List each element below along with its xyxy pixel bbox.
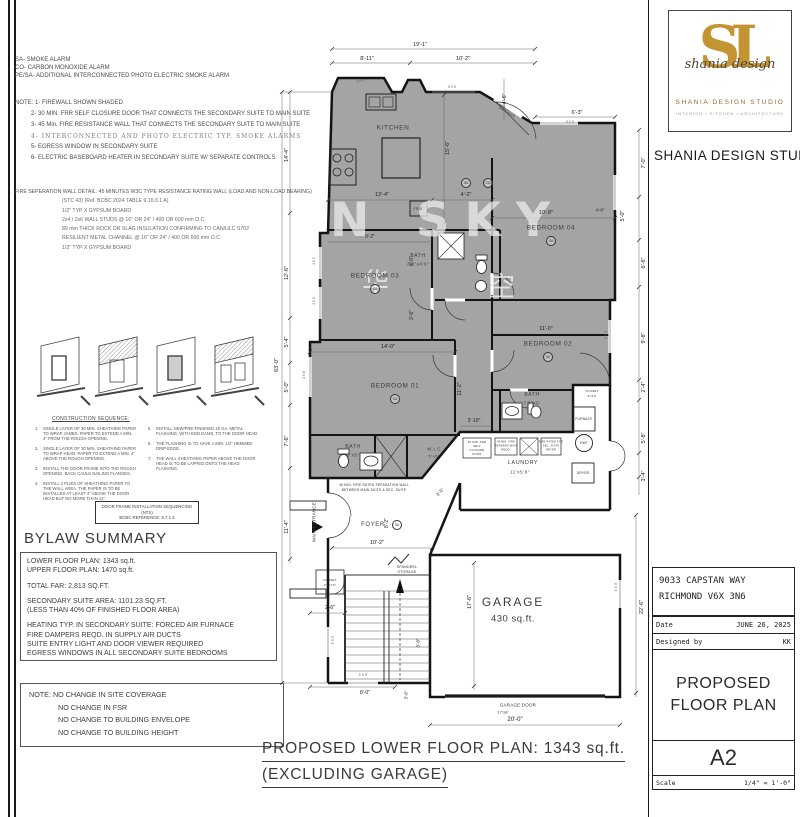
plan-label: SEC. SUITE <box>543 445 559 448</box>
plan-label: GARAGE <box>482 595 544 609</box>
legend-line: SA- SMOKE ALARM <box>15 56 229 64</box>
legend-line: PE/SA- ADDITIONAL INTERCONNECTED PHOTO E… <box>15 72 229 80</box>
plan-label: 2'x2'10" <box>324 583 336 587</box>
bylaw-group: SECONDARY SUITE AREA: 1101.23 SQ.FT.(LES… <box>27 597 270 616</box>
bylaw-group: LOWER FLOOR PLAN: 1343 sq.ft.UPPER FLOOR… <box>27 557 270 576</box>
plan-label: SPANDREL <box>397 565 418 569</box>
door-install-diagrams <box>35 332 267 416</box>
construction-step-number: 6. <box>148 441 156 451</box>
bylaw-summary-box: LOWER FLOOR PLAN: 1343 sq.ft.UPPER FLOOR… <box>20 552 277 661</box>
address-line2: RICHMOND V6X 3N6 <box>659 589 788 605</box>
window-size-label: 3 X 4 <box>356 78 364 84</box>
construction-sequence-left: 1.SINGLE LAYER OF 30 MIN. SHEATHING PAPE… <box>35 426 137 506</box>
dimension-label: 2'-6" <box>325 605 335 611</box>
dimension-label: 63'-0" <box>274 358 280 372</box>
plan-label: LAUNDRY <box>508 460 538 466</box>
construction-step-number: 3. <box>35 466 43 476</box>
sketch-step3 <box>153 337 206 405</box>
plan-label: FURNACE <box>575 417 592 421</box>
bylaw-line: (LESS THAN 40% OF FINISHED FLOOR AREA) <box>27 606 270 615</box>
bylaw-line: UPPER FLOOR PLAN: 1470 sq.ft. <box>27 566 270 575</box>
note-item: 6- ELECTRIC BASEBOARD HEATER IN SECONDAR… <box>31 153 310 164</box>
bylaw-group: TOTAL FAR: 2,813 SQ.FT. <box>27 582 270 591</box>
note-item: 5- EGRESS WINDOW IN SECONDARY SUITE <box>31 142 310 153</box>
dimension-label: 4'-2" <box>461 192 472 198</box>
construction-step-number: 7. <box>148 456 156 471</box>
plan-label: FIRE RATED FOR <box>539 441 563 444</box>
plan-label: DRYER <box>577 471 589 475</box>
window-size-label: 3' X 5' <box>331 636 335 645</box>
dimension-label: 3'-6" <box>409 310 415 320</box>
construction-step-number: 5. <box>148 426 156 436</box>
drawing-title-line1: PROPOSED LOWER FLOOR PLAN: 1343 sq.ft. <box>262 736 625 762</box>
construction-step-text: SINGLE LAYER OF 30 MIN. SHEATHING PAPER … <box>43 446 137 461</box>
legend-line: CO- CARBON MONOXIDE ALARM <box>15 64 229 72</box>
smoke-alarm-symbol: SA <box>543 352 553 362</box>
designer-value: KK <box>783 638 791 646</box>
sheet-border-line <box>8 0 10 817</box>
plan-label: BEDROOM 01 <box>371 383 420 390</box>
dimension-label: 5'-8" <box>641 433 647 444</box>
dimension-label: 5'-0" <box>620 211 626 222</box>
window-size-label: 3' X 5' <box>359 673 368 677</box>
bylaw-line: TOTAL FAR: 2,813 SQ.FT. <box>27 582 270 591</box>
date-label: Date <box>656 621 673 629</box>
general-notes: NOTE: 1- FIREWALL SHOWN SHADED 2- 30 MIN… <box>15 98 310 164</box>
date-row: Date JUNE 26, 2025 <box>653 615 794 633</box>
dimension-label: 12'-6" <box>284 266 290 280</box>
dimension-label: 13'-4" <box>375 192 389 198</box>
plan-labels: KITCHENBEDROOM 03BEDROOM 01BEDROOM 04BED… <box>270 35 660 735</box>
plan-label: 2'x10' <box>587 394 596 398</box>
sheet-title: PROPOSED FLOOR PLAN <box>653 649 794 740</box>
dimension-label: 9'-8" <box>641 333 647 344</box>
dimension-label: 17'-6" <box>467 595 473 609</box>
construction-step-text: THE WALL SHEATHING PAPER ABOVE THE DOOR … <box>156 456 260 471</box>
dimension-label: 10'-2" <box>370 540 384 546</box>
smoke-alarm-symbol: SA <box>392 520 402 530</box>
plan-label: 45 MIN. FIRE RATED SEPARATION WALL <box>339 483 409 487</box>
sheet-number: A2 <box>653 740 794 775</box>
plan-label: GARAGE DOOR <box>500 703 536 708</box>
scale-value: 1/4" = 1'-0" <box>744 779 791 787</box>
site-note-line: NO CHANGE TO BUILDING HEIGHT <box>58 727 275 740</box>
plan-label: BETWEEN MAIN <box>495 445 517 448</box>
plan-label: 11'x5'8" <box>510 470 530 475</box>
plan-label: REQD. <box>501 449 510 452</box>
dimension-label: 2'-4" <box>641 382 647 393</box>
notes-items: 2- 30 MIN. FRR SELF CLOSURE DOOR THAT CO… <box>15 109 310 164</box>
window-size-label: 4' X 3' <box>614 583 618 592</box>
plan-label: FRIG <box>414 207 423 211</box>
plan-label: W.I.C <box>427 447 441 452</box>
dimension-label: 3'-10" <box>468 418 481 424</box>
dimension-label: 8'-0" <box>360 690 370 696</box>
designer-label: Designed by <box>656 638 702 646</box>
dimension-label: 11'-4" <box>284 520 290 534</box>
construction-sequence-heading: CONSTRUCTION SEQUENCE: <box>52 416 130 422</box>
dimension-label: 7'-6" <box>284 436 290 447</box>
dimension-label: 19'-1" <box>413 42 427 48</box>
construction-step-text: INSTALL NEW/PRE-FINISHED 26 GA. METAL FL… <box>156 426 260 436</box>
dimension-label: 20'-0" <box>507 717 522 723</box>
floor-plan: N SKY 华 空 KITCHENBEDROOM 03BEDROOM 01BED… <box>270 35 660 735</box>
dimension-label: 15'-6" <box>445 141 451 155</box>
plan-label: DOOR <box>472 452 481 456</box>
drawing-title: PROPOSED LOWER FLOOR PLAN: 1343 sq.ft. (… <box>262 736 625 788</box>
dimension-label: 3'-4" <box>641 471 647 482</box>
sheet-title-line2: FLOOR PLAN <box>670 695 776 717</box>
dimension-label: 14'-4" <box>284 148 290 162</box>
dimension-label: 10'-8" <box>539 210 553 216</box>
plan-label: BEDROOM 04 <box>527 225 576 232</box>
plan-label: 8'x5' <box>347 453 359 458</box>
designer-row: Designed by KK <box>653 633 794 649</box>
address-line1: 9033 CAPSTAN WAY <box>659 573 788 589</box>
dimension-label: 22'-6" <box>639 600 645 614</box>
construction-step-number: 1. <box>35 426 43 441</box>
plan-label: BEDROOM 02 <box>524 341 573 348</box>
dimension-label: 4'-8" <box>596 208 605 213</box>
dimension-label: 9'-2" <box>365 234 375 240</box>
logo-script-text: shania design <box>669 57 791 72</box>
logo-tagline: INTERIOR • KITCHEN • ARCHITECTURE <box>669 111 791 116</box>
bylaw-summary-heading: BYLAW SUMMARY <box>24 530 167 547</box>
site-note-line: NO CHANGE IN FSR <box>58 702 275 715</box>
plan-label: 5'x6' <box>429 454 440 459</box>
construction-step: 5.INSTALL NEW/PRE-FINISHED 26 GA. METAL … <box>148 426 260 436</box>
window-size-label: 4 X 6 <box>302 371 306 378</box>
plan-label: 45 MIN. FIRE <box>497 441 515 444</box>
sheet-title-line1: PROPOSED <box>676 673 771 695</box>
notes-title: NOTE: 1- FIREWALL SHOWN SHADED <box>15 98 310 109</box>
bylaw-line: FIRE DAMPERS REQD. IN SUPPLY AIR DUCTS <box>27 631 270 640</box>
construction-step-text: THE FLASHING IS TO HAVE A MIN. 1/2" HEMM… <box>156 441 260 451</box>
smoke-alarm-symbol: SA <box>461 178 471 188</box>
note-item: 3- 45 Min. FIRE RESISTANCE WALL THAT CON… <box>31 120 310 131</box>
plan-label: 430 sq.ft. <box>491 614 535 625</box>
plan-label: DRYER <box>546 449 556 452</box>
plan-label: CLOSET <box>323 578 337 582</box>
smoke-alarm-symbol: SA <box>370 284 380 294</box>
bylaw-line: LOWER FLOOR PLAN: 1343 sq.ft. <box>27 557 270 566</box>
construction-step: 2.SINGLE LAYER OF 30 MIN. SHEATHING PAPE… <box>35 446 137 461</box>
dimension-label: 5'-0" <box>284 382 290 393</box>
sketch-step4 <box>211 337 264 405</box>
dimension-label: 11'-0" <box>539 326 553 332</box>
smoke-alarm-symbol: SA <box>390 394 400 404</box>
bylaw-group: HEATING TYP. IN SECONDARY SUITE: FORCED … <box>27 621 270 658</box>
plan-label: ENTRANCE <box>498 106 516 119</box>
plan-label: CLOSET <box>585 389 599 393</box>
door-frame-caption-line2: BCBC REFERENCE: 9.7.1.3 <box>97 515 197 521</box>
dimension-label: 3'-8" <box>416 639 421 648</box>
dimension-label: 3'-5" <box>435 487 445 497</box>
dimension-label: 7'-0" <box>641 158 647 169</box>
door-frame-caption-line1: DOOR FRAME INSTALLATION SEQUENCING (NTS) <box>97 504 197 515</box>
dimension-label: 11'-2" <box>457 382 463 396</box>
dimension-label: 6'-6" <box>641 258 647 269</box>
site-note-rest: NO CHANGE IN FSRNO CHANGE TO BUILDING EN… <box>58 702 275 740</box>
plan-label: MAIN ENTRANCE <box>312 502 317 542</box>
studio-name: SHANIA DESIGN STUDIO <box>654 148 800 163</box>
window-size-label: 5 X 5 <box>566 120 573 124</box>
fire-separation-notes: FIRE SEPERATION WALL DETAIL: 45 MINUTES … <box>15 188 312 253</box>
logo-studio-text: SHANIA DESIGN STUDIO <box>669 99 791 106</box>
bylaw-line: HEATING TYP. IN SECONDARY SUITE: FORCED … <box>27 621 270 630</box>
alarm-legend: SA- SMOKE ALARMCO- CARBON MONOXIDE ALARM… <box>15 56 229 81</box>
sketch-step1 <box>37 337 90 405</box>
construction-step: 3.INSTALL THE DOOR FRAME INTO THE ROUGH … <box>35 466 137 476</box>
plan-label: KITCHEN <box>377 125 410 132</box>
smoke-alarm-symbol: SA <box>546 236 556 246</box>
logo: SL shania design SHANIA DESIGN STUDIO IN… <box>668 10 792 132</box>
construction-step: 4.INSTALL 2 PLIES OF SHEATHING PAPER TO … <box>35 481 137 501</box>
window-size-label: 5 X 5 <box>448 85 455 89</box>
project-address: 9033 CAPSTAN WAY RICHMOND V6X 3N6 <box>653 568 794 615</box>
dimension-label: 3'-6" <box>404 691 409 700</box>
construction-step-number: 2. <box>35 446 43 461</box>
bylaw-line: SECONDARY SUITE AREA: 1101.23 SQ.FT. <box>27 597 270 606</box>
plan-label: 17'x8' <box>497 710 508 715</box>
plan-label: STORAGE <box>398 570 417 574</box>
scale-label: Scale <box>656 779 676 787</box>
dimension-label: 6'-3" <box>572 110 583 116</box>
note-item: 4- INTERCONNECTED AND PHOTO ELECTRIC TYP… <box>31 131 310 142</box>
site-note-line: NO CHANGE TO BUILDING ENVELOPE <box>58 714 275 727</box>
plan-label: BATH <box>524 392 539 398</box>
construction-step: 1.SINGLE LAYER OF 30 MIN. SHEATHING PAPE… <box>35 426 137 441</box>
plan-label: FOYER <box>361 522 385 528</box>
plan-label: BEDROOM 03 <box>351 273 400 280</box>
dimension-label: 14'-0" <box>381 344 395 350</box>
sketch-step2 <box>95 337 148 405</box>
dimension-label: 4'-6" <box>502 94 508 105</box>
plan-label: HWT <box>580 441 588 445</box>
construction-step: 7.THE WALL SHEATHING PAPER ABOVE THE DOO… <box>148 456 260 471</box>
construction-step: 6.THE FLASHING IS TO HAVE A MIN. 1/2" HE… <box>148 441 260 451</box>
dimension-label: 5'-4" <box>284 337 290 348</box>
construction-sequence-right: 5.INSTALL NEW/PRE-FINISHED 26 GA. METAL … <box>148 426 260 476</box>
title-block: 9033 CAPSTAN WAY RICHMOND V6X 3N6 Date J… <box>652 567 795 790</box>
dimension-label: 10'-2" <box>456 56 470 62</box>
note-item: 2- 30 MIN. FRR SELF CLOSURE DOOR THAT CO… <box>31 109 310 120</box>
window-size-label: 4 X 5 <box>312 257 316 264</box>
bylaw-line: EGRESS WINDOWS IN ALL SECONDARY SUITE BE… <box>27 649 270 658</box>
construction-step-number: 4. <box>35 481 43 501</box>
plan-label: BATH <box>345 444 360 450</box>
window-size-label: 4 X 6 <box>312 297 316 304</box>
dimension-label: 8'-0" <box>409 256 415 266</box>
construction-step-text: INSTALL THE DOOR FRAME INTO THE ROUGH OP… <box>43 466 137 476</box>
drawing-title-line2: (EXCLUDING GARAGE) <box>262 762 448 788</box>
construction-step-text: SINGLE LAYER OF 30 MIN. SHEATHING PAPER … <box>43 426 137 441</box>
dimension-label: 8'-2" <box>384 518 390 528</box>
construction-step-text: INSTALL 2 PLIES OF SHEATHING PAPER TO TH… <box>43 481 137 501</box>
date-value: JUNE 26, 2025 <box>736 621 791 629</box>
fire-separation-title: FIRE SEPERATION WALL DETAIL: 45 MINUTES … <box>15 188 312 197</box>
bylaw-line: SUITE ENTRY LIGHT AND DOOR VIEWER REQUIR… <box>27 640 270 649</box>
site-note-box: NOTE: NO CHANGE IN SITE COVERAGE NO CHAN… <box>20 683 284 747</box>
plan-label: 7'8"x5' <box>523 401 540 406</box>
dimension-label: 8'-11" <box>360 56 374 62</box>
door-frame-caption-box: DOOR FRAME INSTALLATION SEQUENCING (NTS)… <box>95 501 199 524</box>
window-size-label: 5 X 3 <box>604 331 608 338</box>
plan-label: BETWEEN MAIN SUITE & SEC. SUITE <box>342 488 407 492</box>
site-note-line1: NOTE: NO CHANGE IN SITE COVERAGE <box>29 689 275 702</box>
scale-row: Scale 1/4" = 1'-0" <box>653 775 794 789</box>
smoke-alarm-symbol: CO <box>483 178 493 188</box>
